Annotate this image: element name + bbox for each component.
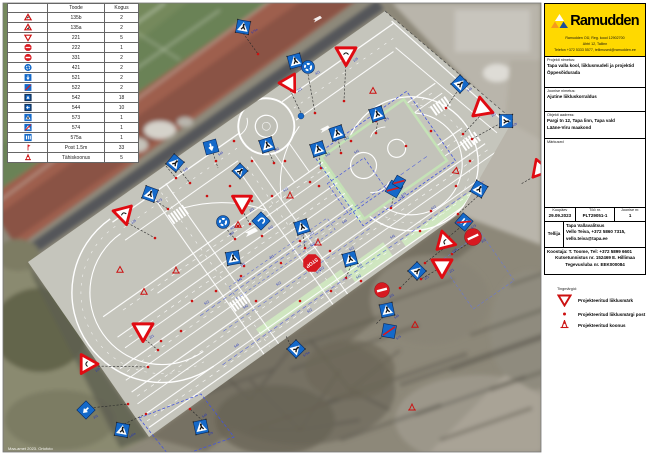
svg-text:Maa-amet 2023. Ortofoto: Maa-amet 2023. Ortofoto: [8, 446, 53, 451]
